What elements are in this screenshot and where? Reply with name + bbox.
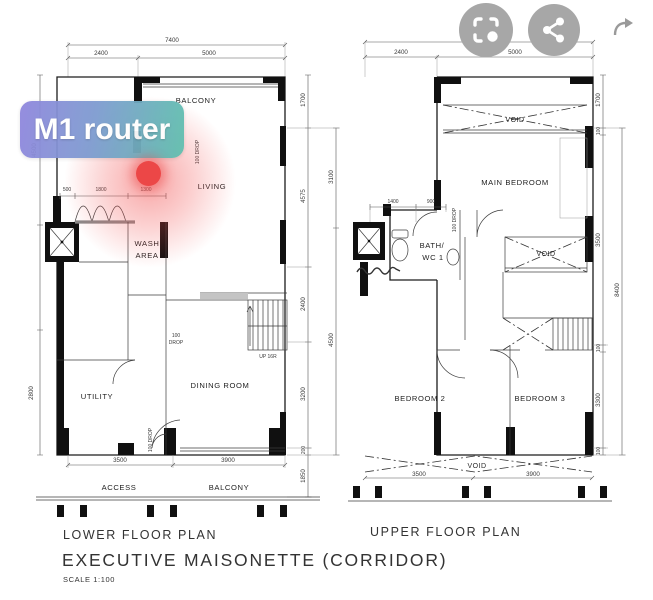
share-button[interactable] — [528, 4, 580, 56]
dim-lower-5000: 5000 — [202, 50, 216, 57]
dim-1400: 1400 — [387, 199, 398, 205]
lower-plan-title: LOWER FLOOR PLAN — [63, 528, 217, 542]
floor-plan-image: 7400 2400 5000 4500 2800 — [0, 0, 653, 600]
room-bedroom-3: BEDROOM 3 — [515, 394, 566, 403]
dim-500: 500 — [63, 187, 72, 193]
dim-r-1700: 1700 — [300, 93, 307, 107]
room-living: LIVING — [198, 182, 227, 191]
lens-search-button[interactable] — [459, 3, 513, 57]
dim-ub-3500: 3500 — [412, 471, 426, 478]
void-top-label: VOID — [505, 117, 524, 124]
toilet — [392, 230, 408, 261]
note-drop-word: DROP — [169, 340, 184, 346]
dim-upper-5000: 5000 — [508, 49, 522, 56]
dim-r-1850: 1850 — [300, 469, 307, 483]
wardrobe — [560, 138, 587, 218]
void-mid-label: VOID — [536, 251, 555, 258]
void-bottom-label: VOID — [467, 463, 486, 470]
stair-void-cross — [503, 318, 553, 350]
floor-plan-drawing: 7400 2400 5000 4500 2800 — [0, 0, 653, 600]
room-utility: UTILITY — [81, 392, 113, 401]
dim-b-3900: 3900 — [221, 457, 235, 464]
note-drop-100: 100 — [172, 333, 181, 339]
dim-lower-2400: 2400 — [94, 50, 108, 57]
dim-ur-3300: 3300 — [595, 393, 602, 407]
dim-r-2400: 2400 — [300, 297, 307, 311]
m1-router-label: M1 router — [20, 101, 184, 158]
utility-door-arc — [113, 360, 135, 384]
dim-ub-3900: 3900 — [526, 471, 540, 478]
label-balcony-bottom: BALCONY — [209, 483, 250, 492]
forward-arrow-icon — [612, 17, 634, 39]
router-location-dot — [136, 161, 161, 186]
lens-icon — [470, 14, 502, 46]
room-balcony-top: BALCONY — [176, 96, 217, 105]
bedroom-door-arcs — [437, 350, 518, 378]
plan-main-title: EXECUTIVE MAISONETTE (CORRIDOR) — [62, 550, 447, 570]
dim-1800: 1800 — [95, 187, 106, 193]
main-bedroom-door-arc — [477, 210, 503, 237]
upper-floor-plan: 7400 2400 5000 VOID — [348, 34, 626, 501]
corridor-ticks-upper — [353, 486, 607, 498]
stairs-up — [247, 300, 287, 350]
note-drop-door: 100 DROP — [148, 427, 154, 452]
share-icon — [540, 16, 568, 44]
dim-b-3500: 3500 — [113, 457, 127, 464]
room-bath-line2: WC 1 — [422, 253, 443, 262]
dim-r-3200: 3200 — [300, 387, 307, 401]
dim-lower-left-2800: 2800 — [28, 386, 35, 400]
room-wash-line1: WASH — [135, 239, 160, 248]
lift-shaft-lower — [45, 222, 79, 262]
room-dining: DINING ROOM — [191, 381, 250, 390]
dim-ur-100c: 100 — [596, 447, 602, 456]
lift-shaft-upper — [353, 222, 385, 260]
dim-lower-total-width: 7400 — [165, 37, 179, 44]
room-wash-line2: AREA — [135, 251, 158, 260]
room-main-bedroom: MAIN BEDROOM — [481, 178, 549, 187]
forward-button[interactable] — [612, 17, 634, 39]
dim-upper-2400: 2400 — [394, 49, 408, 56]
upper-plan-title: UPPER FLOOR PLAN — [370, 525, 521, 539]
wall-shading — [200, 293, 248, 299]
note-drop-upper: 100 DROP — [452, 207, 458, 232]
stairs-up-label: UP 16R — [259, 354, 277, 360]
basin — [447, 249, 459, 265]
dim-ur-3500: 3500 — [595, 233, 602, 247]
dim-1300: 1300 — [140, 187, 151, 193]
scale-note: SCALE 1:100 — [63, 575, 115, 584]
corridor-ticks-lower — [57, 505, 287, 517]
dim-ur-100b: 100 — [596, 344, 602, 353]
dim-ur-1700: 1700 — [595, 93, 602, 107]
dim-ur-8400: 8400 — [614, 283, 621, 297]
dim-r-200: 200 — [301, 446, 307, 455]
note-drop-living: 100 DROP — [195, 139, 201, 164]
room-bedroom-2: BEDROOM 2 — [395, 394, 446, 403]
entrance-door-arcs — [75, 206, 126, 222]
corridor-line-lower — [36, 497, 320, 500]
dim-ro-4500: 4500 — [328, 333, 335, 347]
dim-900: 900 — [427, 199, 436, 205]
room-bath-line1: BATH/ — [420, 241, 445, 250]
dim-r-4575: 4575 — [300, 189, 307, 203]
stairs-upper — [553, 318, 592, 350]
dim-ro-3100: 3100 — [328, 170, 335, 184]
label-access: ACCESS — [102, 483, 137, 492]
dim-ur-100a: 100 — [596, 127, 602, 136]
